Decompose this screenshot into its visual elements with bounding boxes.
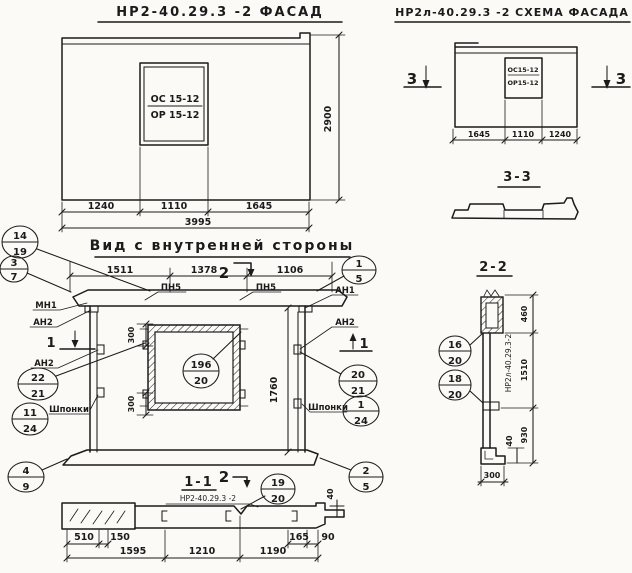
callout-11-24-bottom: 24	[23, 424, 37, 435]
inner-top-cap	[73, 290, 347, 306]
section-11-dim-510: 510	[74, 532, 94, 543]
section-11-dim-1190: 1190	[260, 546, 287, 557]
callout-18-20-top: 18	[448, 374, 462, 385]
section-22-sill	[483, 402, 499, 410]
callout-4-9-top: 4	[23, 466, 30, 477]
callout-4-9-bottom: 9	[23, 482, 30, 493]
section-11-embedded-channels	[162, 511, 297, 521]
section-mark-3-left: 3	[404, 66, 441, 89]
schema-window-outline	[505, 58, 542, 98]
callout-196-20-bottom: 20	[194, 376, 208, 387]
section-11-title: 1-1	[184, 475, 214, 490]
section-22-foot-anchor	[485, 451, 493, 459]
facade-title: НР2-40.29.3 -2 ФАСАД	[116, 5, 324, 20]
section-11-dim-1210: 1210	[189, 546, 216, 557]
section-2-2: 2-2 НР2л-40.29.3-2 460 1510 930 40 300	[477, 260, 538, 486]
section-1-1: 1-1 2 НР2-40.29.3 -2 510 150 165 90 1595…	[62, 468, 344, 562]
facade-window-mark-top: ОС 15-12	[151, 94, 200, 105]
callout-3-7-top: 3	[11, 258, 18, 269]
inner-dim-300-bottom: 300	[127, 395, 136, 412]
schema-title: НР2л-40.29.3 -2 СХЕМА ФАСАДА	[395, 6, 629, 19]
schema-dim-1645: 1645	[468, 130, 491, 139]
callout-3-7-bottom: 7	[11, 272, 18, 283]
callout-1-24-top: 1	[358, 400, 365, 411]
callout-1-24: 1 24	[343, 396, 379, 427]
schema-window-mark-bottom: ОР15-12	[507, 79, 538, 87]
section-22-anchor-loops	[484, 290, 499, 296]
section-1-right-label: 1	[359, 337, 370, 352]
facade-dim-1110: 1110	[161, 201, 188, 212]
callout-20-21-bottom: 21	[351, 386, 365, 397]
section-22-dim-300: 300	[484, 471, 501, 480]
inner-dim-1106: 1106	[277, 265, 304, 276]
callout-14-19: 14 19	[2, 226, 150, 291]
section-22-title: 2-2	[479, 260, 509, 275]
section-11-dim-40: 40	[326, 488, 335, 500]
label-an2-right-leader	[300, 327, 358, 349]
callout-18-20: 18 20	[439, 370, 483, 403]
drawing-sheet: НР2-40.29.3 -2 ФАСАД ОС 15-12 ОР 15-12 1…	[0, 0, 632, 573]
callout-22-21: 22 21	[18, 343, 145, 400]
label-pn5-left-leader	[145, 292, 186, 300]
callout-11-24: 11 24	[12, 403, 48, 435]
callout-1-5-top: 1	[356, 259, 363, 270]
callout-16-20-bottom: 20	[448, 356, 462, 367]
callout-196-20-top: 196	[191, 360, 212, 371]
facade-view: НР2-40.29.3 -2 ФАСАД ОС 15-12 ОР 15-12 1…	[59, 5, 345, 232]
section-3-right-label: 3	[616, 70, 626, 88]
section-22-dim-1510: 1510	[520, 358, 529, 381]
callout-1-24-bottom: 24	[354, 416, 368, 427]
schema-window-mark-top: ОС15-12	[507, 66, 538, 74]
inner-title: Вид с внутренней стороны	[90, 238, 355, 254]
facade-window-mark-bottom: ОР 15-12	[151, 110, 200, 121]
section-11-stamp: НР2-40.29.3 -2	[180, 494, 236, 503]
callout-1-5-bottom: 5	[356, 274, 363, 285]
callout-22-21-top: 22	[31, 373, 45, 384]
callout-16-20-top: 16	[448, 340, 462, 351]
section-mark-2-bottom: 2	[219, 468, 251, 488]
callout-18-20-bottom: 20	[448, 390, 462, 401]
section-22-dim-40: 40	[505, 435, 514, 447]
panel-drawing: НР2-40.29.3 -2 ФАСАД ОС 15-12 ОР 15-12 1…	[0, 0, 632, 573]
section-11-dim-90: 90	[321, 532, 335, 543]
inner-dim-1760: 1760	[269, 376, 280, 403]
facade-dim-total: 3995	[185, 217, 211, 228]
section-33-profile-joints	[504, 210, 543, 218]
inner-dim-300-top: 300	[127, 326, 136, 343]
section-11-left-block-hatch	[70, 509, 125, 524]
facade-dim-1240: 1240	[88, 201, 115, 212]
section-11-slab-profile	[135, 503, 344, 528]
callout-19-20-top: 19	[271, 478, 285, 489]
label-pn5-right-leader	[240, 292, 281, 300]
facade-dim-height: 2900	[323, 105, 334, 132]
callout-19-20-bottom: 20	[271, 494, 285, 505]
callout-2-5: 2 5	[320, 458, 383, 493]
label-an2-left-top: АН2	[33, 318, 53, 328]
section-mark-2-top: 2	[219, 263, 255, 282]
section-mark-3-right: 3	[592, 66, 630, 89]
callout-4-9: 4 9	[8, 459, 67, 493]
inner-dim-1511: 1511	[107, 265, 133, 276]
label-an1: АН1	[335, 286, 355, 296]
schema-dim-1110: 1110	[512, 130, 535, 139]
label-mn1: МН1	[35, 301, 57, 311]
section-3-3: 3-3	[452, 170, 578, 219]
section-22-stamp: НР2л-40.29.3-2	[504, 334, 513, 393]
callout-20-21-top: 20	[351, 370, 365, 381]
inner-view: Вид с внутренней стороны 1511 1378 1106 …	[30, 238, 372, 465]
inner-dim-1760-line	[285, 305, 291, 455]
callout-20-21: 20 21	[300, 352, 377, 397]
facade-dim-1645: 1645	[246, 201, 272, 212]
callout-22-21-bottom: 21	[31, 389, 45, 400]
section-11-dim-1595: 1595	[120, 546, 146, 557]
section-22-stem	[483, 333, 490, 448]
section-2-top-label: 2	[219, 264, 229, 282]
section-11-dim-165: 165	[289, 532, 309, 543]
label-pn5-right: ПН5	[256, 283, 276, 293]
callout-16-20: 16 20	[439, 333, 483, 367]
label-an2-right: АН2	[335, 318, 355, 328]
section-33-title: 3-3	[503, 170, 533, 185]
section-22-head-inner	[486, 303, 498, 328]
callout-14-19-top: 14	[13, 231, 27, 242]
section-mark-1-right: 1	[340, 333, 372, 352]
callout-2-5-top: 2	[363, 466, 370, 477]
section-1-left-label: 1	[46, 336, 57, 351]
inner-anchor-plate-left	[85, 306, 98, 312]
schema-dim-1240: 1240	[549, 130, 572, 139]
section-22-dim-930: 930	[520, 426, 529, 443]
label-pn5-left: ПН5	[161, 283, 181, 293]
section-3-left-label: 3	[407, 70, 417, 88]
inner-bottom-strip	[63, 450, 318, 465]
callout-11-24-top: 11	[23, 408, 37, 419]
section-2-bottom-label: 2	[219, 468, 229, 486]
section-33-profile	[452, 198, 578, 219]
section-mark-1-left: 1	[46, 331, 95, 351]
facade-schema-view: НР2л-40.29.3 -2 СХЕМА ФАСАДА ОС15-12 ОР1…	[395, 6, 630, 144]
label-keys-right: Шпонки	[308, 403, 348, 413]
label-keys-left: Шпонки	[49, 405, 89, 415]
callout-2-5-bottom: 5	[363, 482, 370, 493]
section-11-dim-150: 150	[110, 532, 130, 543]
section-22-dim-460: 460	[520, 305, 529, 322]
inner-dim-1378: 1378	[191, 265, 218, 276]
callout-3-7: 3 7	[0, 256, 71, 292]
